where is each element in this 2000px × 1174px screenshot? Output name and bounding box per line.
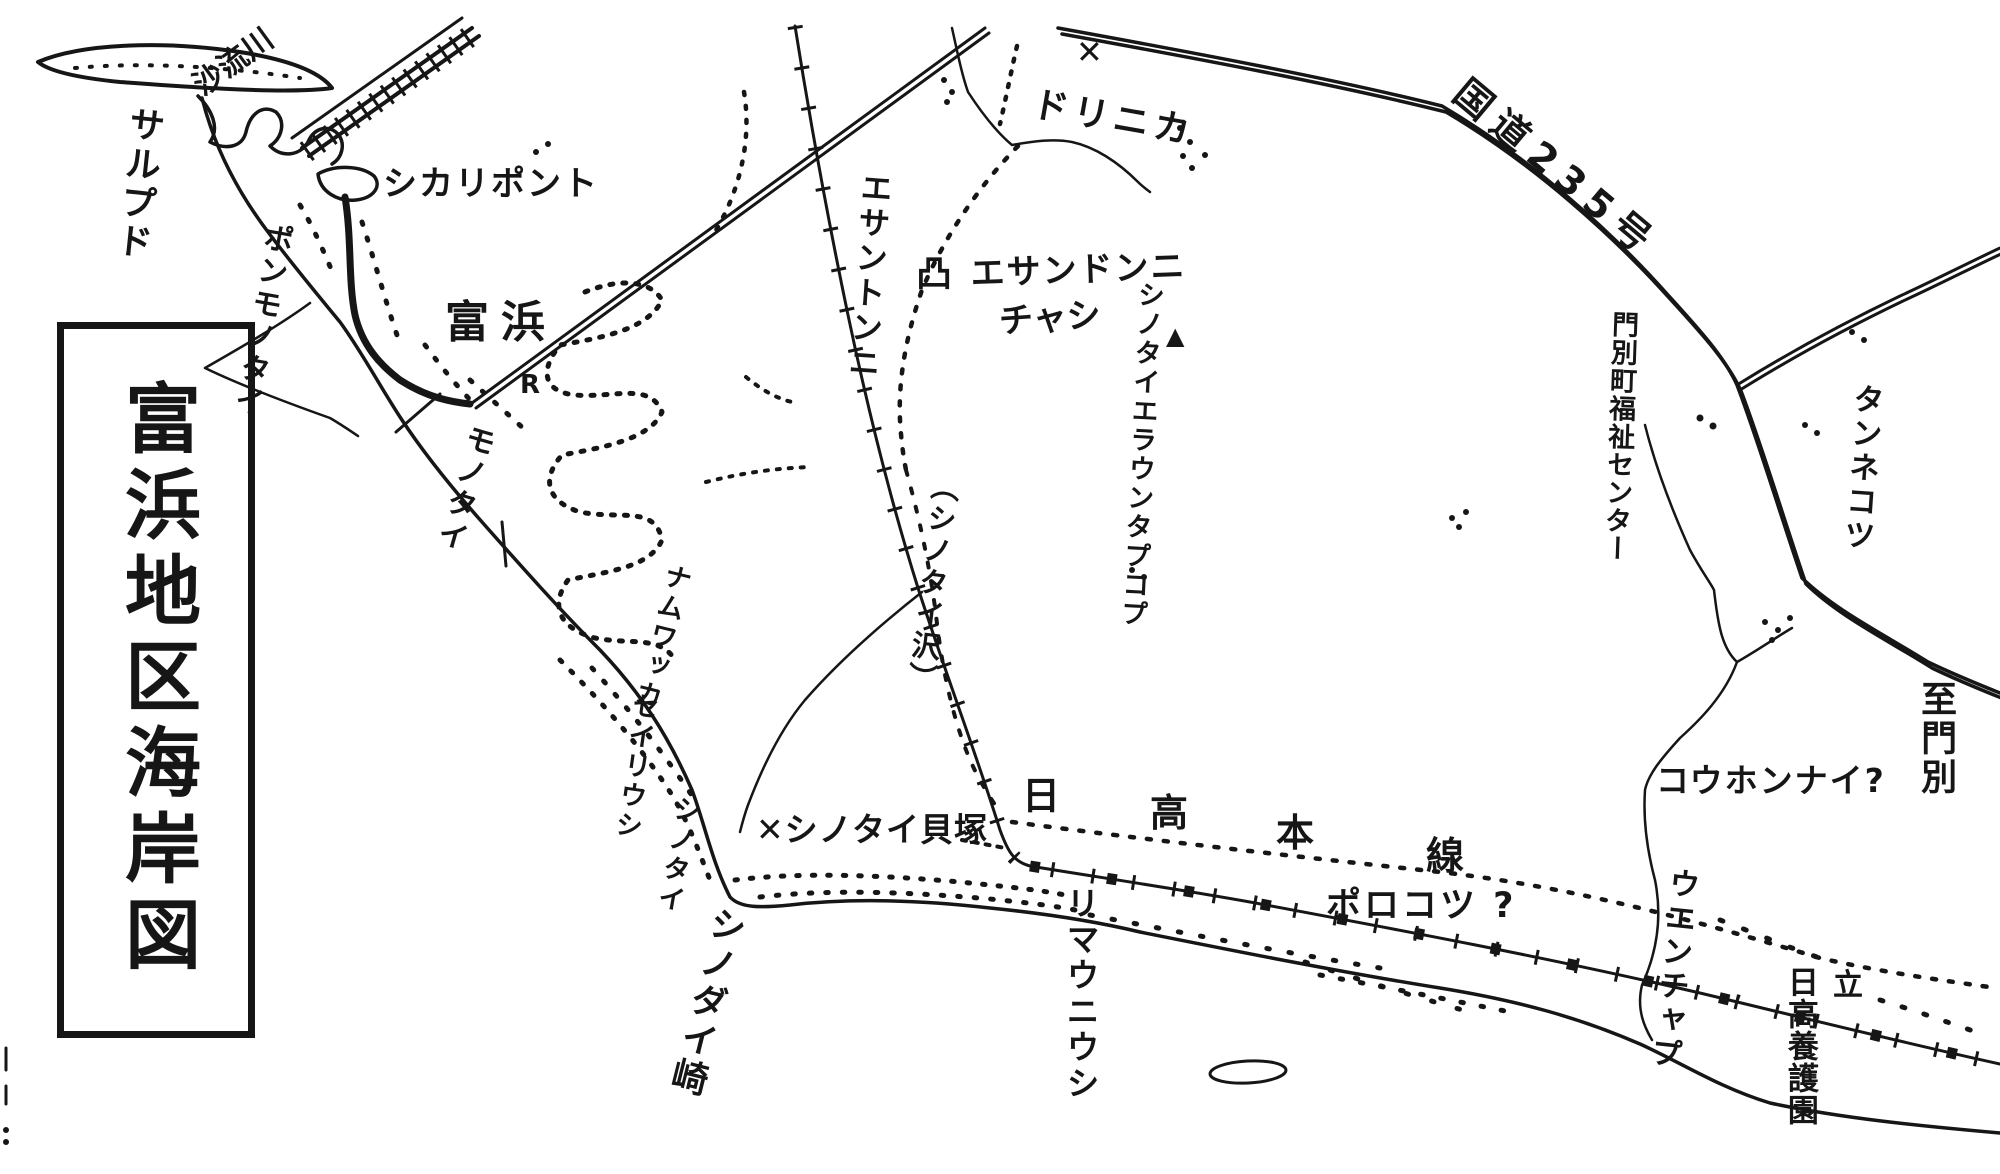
hand-drawn-coastal-map: 富浜地区海岸図 沙流川 サルプド シカリポント ポンモノタイ 富浜 R モノタイ…: [0, 0, 2000, 1174]
map-title: 富浜地区海岸図: [101, 379, 211, 981]
offshore-sandbar: [1209, 1059, 1286, 1085]
label-kouhonnai: コウホンナイ?: [1656, 764, 1886, 799]
label-tomihama: 富浜: [445, 300, 557, 347]
label-hidaka-en: 日高養護園: [1783, 966, 1816, 1126]
road-tomihama: [472, 28, 989, 408]
map-title-box: 富浜地区海岸図: [57, 322, 255, 1038]
stream-kouhonnai-branch: [1737, 628, 1792, 662]
label-tatsu: 立: [1833, 970, 1863, 1002]
chashi-fort-icon: 凸: [916, 256, 952, 294]
sandbar-outline: [38, 45, 332, 90]
label-r-mark: R: [520, 372, 540, 400]
stream-cape-valley: [740, 592, 922, 832]
x-mark-icon: ✕: [1076, 36, 1103, 70]
label-chashi: チャシ: [998, 297, 1102, 340]
label-porokotsu: ポロコツ ?: [1326, 888, 1517, 925]
label-shikari-ponto: シカリポント: [383, 166, 599, 202]
dorinika-dotted: [1000, 46, 1017, 124]
small-arc-dotted-1: [746, 377, 792, 402]
label-hidaka-honsen-2: 高: [1150, 793, 1188, 833]
small-arc-dotted-2: [706, 467, 812, 482]
label-hidaka-honsen-4: 線: [1426, 836, 1464, 876]
label-hidaka-honsen-3: 本: [1276, 813, 1314, 853]
hill-triangle-icon: ▲: [1166, 324, 1184, 349]
label-rimauniushi: リマウニウシ: [1062, 886, 1097, 1102]
road-branch-east: [1737, 248, 2000, 390]
label-shinotai-kaizuka: ✕シノタイ貝塚: [756, 813, 988, 848]
map-linework: [0, 0, 2000, 1174]
label-itaru-monbetsu: 至門別: [1916, 680, 1954, 797]
railway-bridge: [292, 18, 479, 156]
label-hidaka-honsen-1: 日: [1022, 776, 1060, 816]
bluff-rail-west-dotted: [715, 92, 746, 232]
